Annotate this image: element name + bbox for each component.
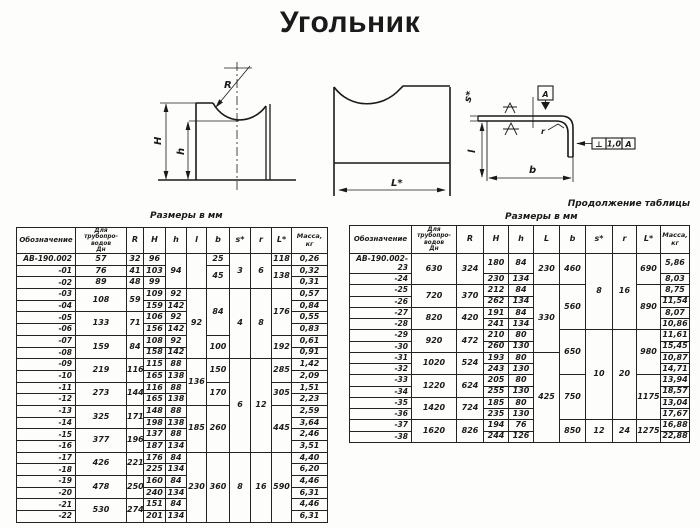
table-cell: -10: [17, 370, 76, 382]
table-cell: 820: [412, 307, 457, 330]
table-cell: 230: [534, 254, 560, 285]
table-cell: 41: [127, 265, 144, 277]
table-cell: 8: [586, 254, 613, 330]
table-cell: 377: [76, 429, 127, 452]
table-cell: 171: [127, 405, 144, 428]
table-cell: 8,03: [661, 274, 690, 285]
table-cell: -30: [350, 341, 412, 352]
table-cell: 0,61: [292, 335, 328, 347]
dim-label-leg: l: [467, 149, 478, 153]
table-cell: 1420: [412, 397, 457, 420]
dim-label-corner-radius: r: [541, 127, 546, 136]
table-cell: 180: [484, 254, 509, 274]
table-cell: 134: [509, 319, 534, 330]
table-cell: 84: [166, 476, 187, 488]
table-cell: АВ-190.002: [17, 254, 76, 266]
table-cell: 108: [76, 289, 127, 312]
table-cell: 88: [166, 359, 187, 371]
column-header: b: [560, 226, 586, 254]
table-cell: -27: [350, 307, 412, 318]
table-cell: -32: [350, 364, 412, 375]
table-cell: 826: [457, 420, 484, 443]
table-cell: 115: [144, 359, 166, 371]
column-header: L*: [272, 228, 292, 254]
table-cell: 3,64: [292, 417, 328, 429]
datum-label: A: [541, 90, 548, 99]
table-cell: -17: [17, 452, 76, 464]
table-cell: 370: [457, 285, 484, 308]
table-cell: 890: [637, 285, 661, 330]
table-cell: 198: [144, 417, 166, 429]
table-cell: 130: [509, 364, 534, 375]
table-cell: 1020: [412, 352, 457, 375]
table-cell: 134: [166, 441, 187, 453]
table-continuation-note: Продолжение таблицы: [540, 199, 690, 209]
table-cell: 1620: [412, 420, 457, 443]
table-cell: 196: [127, 429, 144, 452]
table-cell: 221: [127, 452, 144, 475]
table-cell: 14,71: [661, 364, 690, 375]
column-header: Обозначение: [350, 226, 412, 254]
table-row: -0715984108921001920,61: [17, 335, 328, 347]
table-cell: -34: [350, 386, 412, 397]
table-cell: 1,51: [292, 382, 328, 394]
table-cell: 6: [251, 254, 272, 289]
table-cell: 76: [509, 420, 534, 431]
table-cell: 250: [127, 476, 144, 499]
table-row: АВ-190.0025732969425361180,26: [17, 254, 328, 266]
scanned-document-page: Угольник R H: [0, 0, 700, 528]
table-row: -25720370212843305608908,75: [350, 285, 690, 296]
table-cell: 159: [76, 335, 127, 358]
table-cell: -31: [350, 352, 412, 363]
table-cell: 244: [484, 431, 509, 442]
table-cell: 0,31: [292, 277, 328, 289]
table-cell: 150: [207, 359, 230, 382]
table-row: -33122062420580750117513,94: [350, 375, 690, 386]
table-cell: 100: [207, 335, 230, 358]
table-cell: 2,59: [292, 405, 328, 417]
table-cell: 460: [560, 254, 586, 285]
table-cell: 920: [412, 330, 457, 353]
table-cell: -29: [350, 330, 412, 341]
table-cell: 650: [560, 330, 586, 375]
column-header: Обозначение: [17, 228, 76, 254]
table-cell: 32: [127, 254, 144, 266]
table-cell: 116: [127, 359, 144, 382]
table-cell: 690: [637, 254, 661, 285]
table-cell: 133: [76, 312, 127, 335]
table-cell: -33: [350, 375, 412, 386]
column-header: H: [144, 228, 166, 254]
table-cell: 8,07: [661, 307, 690, 318]
table-cell: 243: [484, 364, 509, 375]
table-cell: 109: [144, 289, 166, 301]
table-row: -371620826194768501224127516,88: [350, 420, 690, 431]
table-cell: -24: [350, 274, 412, 285]
table-cell: 590: [272, 452, 292, 522]
table-cell: 108: [144, 335, 166, 347]
table-cell: 134: [166, 511, 187, 523]
dimensions-table-left: ОбозначениеДля трубопро- водов ДнRHhlbs*…: [16, 227, 328, 523]
table-cell: 273: [76, 382, 127, 405]
datum-triangle-icon: [541, 102, 550, 110]
table-cell: 305: [272, 382, 292, 405]
table-cell: 134: [509, 274, 534, 285]
table-cell: 59: [127, 289, 144, 312]
table-row: -13325171148881852604452,59: [17, 405, 328, 417]
table-cell: 10,86: [661, 319, 690, 330]
table-cell: 420: [457, 307, 484, 330]
table-cell: 0,26: [292, 254, 328, 266]
table-row: -11273144116881703051,51: [17, 382, 328, 394]
table-cell: 71: [127, 312, 144, 335]
table-cell: 76: [76, 265, 127, 277]
column-header: H: [484, 226, 509, 254]
left-table-caption: Размеры в мм: [150, 211, 223, 221]
table-cell: -25: [350, 285, 412, 296]
table-cell: 20: [613, 330, 637, 420]
table-cell: 624: [457, 375, 484, 398]
table-cell: 138: [166, 394, 187, 406]
column-header: h: [166, 228, 187, 254]
column-header: s*: [230, 228, 251, 254]
column-header: Для трубопро- водов Дн: [412, 226, 457, 254]
table-cell: 6,31: [292, 511, 328, 523]
table-cell: 274: [127, 499, 144, 523]
dimensions-table-right: ОбозначениеДля трубопро- водов ДнRHhLbs*…: [349, 225, 690, 443]
table-cell: 0,91: [292, 347, 328, 359]
table-row: -2992047221080650102098011,61: [350, 330, 690, 341]
table-cell: 92: [166, 312, 187, 324]
table-cell: 5,86: [661, 254, 690, 274]
table-cell: 212: [484, 285, 509, 296]
table-cell: 8,75: [661, 285, 690, 296]
table-cell: 118: [272, 254, 292, 266]
table-cell: 630: [412, 254, 457, 285]
table-cell: 57: [76, 254, 127, 266]
table-cell: 92: [187, 289, 207, 359]
table-cell: 148: [144, 405, 166, 417]
table-cell: 84: [127, 335, 144, 358]
table-cell: 8: [230, 452, 251, 522]
table-cell: -08: [17, 347, 76, 359]
table-cell: -15: [17, 429, 76, 441]
table-cell: 11,61: [661, 330, 690, 341]
table-cell: 138: [166, 417, 187, 429]
table-cell: 94: [166, 254, 187, 289]
table-cell: 4,46: [292, 499, 328, 511]
table-cell: 360: [207, 452, 230, 522]
table-cell: -02: [17, 277, 76, 289]
table-row: -09219116115881361506122851,42: [17, 359, 328, 371]
table-cell: 3,51: [292, 441, 328, 453]
table-cell: 12: [586, 420, 613, 443]
table-cell: 850: [560, 420, 586, 443]
dim-label-width: b: [529, 165, 536, 176]
table-cell: 230: [187, 452, 207, 522]
table-cell: 3: [230, 254, 251, 289]
column-header: L*: [637, 226, 661, 254]
table-cell: 144: [127, 382, 144, 405]
table-cell: 240: [144, 487, 166, 499]
column-header: r: [251, 228, 272, 254]
table-cell: -13: [17, 405, 76, 417]
table-cell: 84: [166, 499, 187, 511]
table-cell: -09: [17, 359, 76, 371]
table-cell: 138: [272, 265, 292, 288]
table-cell: 524: [457, 352, 484, 375]
table-cell: 130: [509, 386, 534, 397]
table-cell: -06: [17, 324, 76, 336]
table-cell: 0,32: [292, 265, 328, 277]
table-cell: 16: [251, 452, 272, 522]
table-cell: 151: [144, 499, 166, 511]
table-cell: 96: [144, 254, 166, 266]
table-cell: -04: [17, 300, 76, 312]
table-cell: 25: [207, 254, 230, 266]
table-cell: -03: [17, 289, 76, 301]
column-header: b: [207, 228, 230, 254]
section-view-drawing: [470, 86, 635, 182]
table-cell: -05: [17, 312, 76, 324]
table-cell: -35: [350, 397, 412, 408]
table-cell: 18,57: [661, 386, 690, 397]
technical-drawing-views: R H h L*: [0, 0, 700, 212]
table-cell: -12: [17, 394, 76, 406]
table-cell: 4: [230, 289, 251, 359]
table-cell: -36: [350, 409, 412, 420]
table-cell: 0,55: [292, 312, 328, 324]
table-cell: -19: [17, 476, 76, 488]
table-cell: 137: [144, 429, 166, 441]
table-cell: 724: [457, 397, 484, 420]
table-cell: 1275: [637, 420, 661, 443]
column-header: Масса, кг: [661, 226, 690, 254]
table-cell: 262: [484, 296, 509, 307]
table-cell: 255: [484, 386, 509, 397]
table-cell: 187: [144, 441, 166, 453]
table-cell: 185: [187, 405, 207, 452]
tolerance-datum: A: [624, 140, 631, 149]
dim-label-length: L*: [391, 178, 403, 189]
table-cell: 17,67: [661, 409, 690, 420]
table-cell: 192: [272, 335, 292, 358]
table-cell: 80: [509, 330, 534, 341]
table-cell: 193: [484, 352, 509, 363]
table-cell: 191: [484, 307, 509, 318]
table-cell: 210: [484, 330, 509, 341]
table-cell: 48: [127, 277, 144, 289]
table-cell: 88: [166, 429, 187, 441]
column-header: h: [509, 226, 534, 254]
table-cell: 6,31: [292, 487, 328, 499]
table-cell: 92: [166, 335, 187, 347]
table-cell: 170: [207, 382, 230, 405]
perpendicularity-icon: ⊥: [595, 140, 602, 149]
table-cell: 165: [144, 370, 166, 382]
table-row: АВ-190.002-23630324180842304608166905,86: [350, 254, 690, 274]
table-cell: -11: [17, 382, 76, 394]
table-cell: 185: [484, 397, 509, 408]
table-cell: 530: [76, 499, 127, 523]
dim-label-thickness: s*: [462, 89, 476, 104]
table-cell: -14: [17, 417, 76, 429]
column-header: L: [534, 226, 560, 254]
table-cell: 201: [144, 511, 166, 523]
table-cell: 84: [509, 307, 534, 318]
table-cell: 325: [76, 405, 127, 428]
table-cell: 285: [272, 359, 292, 382]
table-cell: 138: [166, 370, 187, 382]
table-cell: 88: [166, 405, 187, 417]
table-cell: 10: [586, 330, 613, 420]
table-cell: 205: [484, 375, 509, 386]
table-cell: 134: [509, 296, 534, 307]
table-cell: 230: [484, 274, 509, 285]
table-cell: 225: [144, 464, 166, 476]
table-cell: -38: [350, 431, 412, 442]
table-cell: 159: [144, 300, 166, 312]
table-cell: [187, 254, 207, 289]
table-cell: 2,09: [292, 370, 328, 382]
table-cell: 472: [457, 330, 484, 353]
table-cell: 1175: [637, 375, 661, 420]
table-row: -17426221176842303608165904,40: [17, 452, 328, 464]
dim-label-inner-height: h: [176, 148, 187, 155]
table-cell: 0,83: [292, 324, 328, 336]
table-cell: 426: [76, 452, 127, 475]
table-cell: 84: [207, 289, 230, 336]
table-cell: -01: [17, 265, 76, 277]
table-cell: 4,40: [292, 452, 328, 464]
table-cell: 136: [187, 359, 207, 406]
column-header: l: [187, 228, 207, 254]
table-cell: 0,84: [292, 300, 328, 312]
table-cell: 13,04: [661, 397, 690, 408]
table-cell: 15,45: [661, 341, 690, 352]
table-cell: 8: [251, 289, 272, 359]
table-cell: -26: [350, 296, 412, 307]
column-header: Для трубопро- водов Дн: [76, 228, 127, 254]
table-cell: -22: [17, 511, 76, 523]
column-header: R: [457, 226, 484, 254]
tolerance-value: 1,0: [607, 140, 622, 149]
table-cell: 80: [509, 397, 534, 408]
table-cell: -18: [17, 464, 76, 476]
table-cell: -28: [350, 319, 412, 330]
table-cell: 241: [484, 319, 509, 330]
table-cell: 260: [484, 341, 509, 352]
table-cell: 126: [509, 431, 534, 442]
table-cell: -21: [17, 499, 76, 511]
column-header: Масса, кг: [292, 228, 328, 254]
table-cell: 176: [144, 452, 166, 464]
table-cell: 425: [534, 352, 560, 442]
table-cell: 11,54: [661, 296, 690, 307]
right-table-caption: Размеры в мм: [505, 212, 578, 222]
table-cell: -37: [350, 420, 412, 431]
table-cell: 1,42: [292, 359, 328, 371]
table-cell: 160: [144, 476, 166, 488]
table-cell: 16: [613, 254, 637, 330]
table-cell: 176: [272, 289, 292, 336]
column-header: r: [613, 226, 637, 254]
dim-label-radius: R: [224, 80, 232, 91]
table-cell: 4,46: [292, 476, 328, 488]
table-cell: 142: [166, 300, 187, 312]
table-cell: 1220: [412, 375, 457, 398]
table-cell: 99: [144, 277, 166, 289]
table-cell: 720: [412, 285, 457, 308]
table-cell: 84: [509, 254, 534, 274]
table-cell: 142: [166, 324, 187, 336]
table-cell: 165: [144, 394, 166, 406]
table-cell: 156: [144, 324, 166, 336]
dim-label-height: H: [153, 136, 164, 145]
table-cell: 6,20: [292, 464, 328, 476]
table-cell: 134: [166, 464, 187, 476]
table-cell: 88: [166, 382, 187, 394]
table-cell: 116: [144, 382, 166, 394]
column-header: R: [127, 228, 144, 254]
table-cell: 330: [534, 285, 560, 353]
table-cell: -20: [17, 487, 76, 499]
table-cell: 24: [613, 420, 637, 443]
table-cell: 235: [484, 409, 509, 420]
column-header: s*: [586, 226, 613, 254]
table-cell: 0,57: [292, 289, 328, 301]
table-cell: 89: [76, 277, 127, 289]
table-cell: 560: [560, 285, 586, 330]
table-cell: 2,23: [292, 394, 328, 406]
table-cell: 10,87: [661, 352, 690, 363]
table-cell: 130: [509, 341, 534, 352]
table-cell: 12: [251, 359, 272, 453]
table-cell: 142: [166, 347, 187, 359]
table-cell: 260: [207, 405, 230, 452]
table-cell: 158: [144, 347, 166, 359]
table-cell: 13,94: [661, 375, 690, 386]
table-cell: 324: [457, 254, 484, 285]
table-cell: 84: [166, 452, 187, 464]
table-cell: АВ-190.002-23: [350, 254, 412, 274]
table-cell: 750: [560, 375, 586, 420]
table-cell: 445: [272, 405, 292, 452]
table-cell: 2,46: [292, 429, 328, 441]
surface-finish-icon: [503, 103, 519, 135]
table-cell: 80: [509, 352, 534, 363]
table-cell: 6: [230, 359, 251, 453]
table-cell: 194: [484, 420, 509, 431]
table-cell: 92: [166, 289, 187, 301]
table-cell: 478: [76, 476, 127, 499]
table-cell: 22,88: [661, 431, 690, 442]
table-cell: 84: [509, 285, 534, 296]
table-cell: -07: [17, 335, 76, 347]
table-cell: -16: [17, 441, 76, 453]
table-cell: 80: [509, 375, 534, 386]
table-cell: 16,88: [661, 420, 690, 431]
table-cell: 106: [144, 312, 166, 324]
table-cell: 219: [76, 359, 127, 382]
table-cell: 134: [166, 487, 187, 499]
table-cell: 103: [144, 265, 166, 277]
table-cell: 45: [207, 265, 230, 288]
table-cell: 980: [637, 330, 661, 375]
table-cell: 130: [509, 409, 534, 420]
table-row: -0310859109929284481760,57: [17, 289, 328, 301]
